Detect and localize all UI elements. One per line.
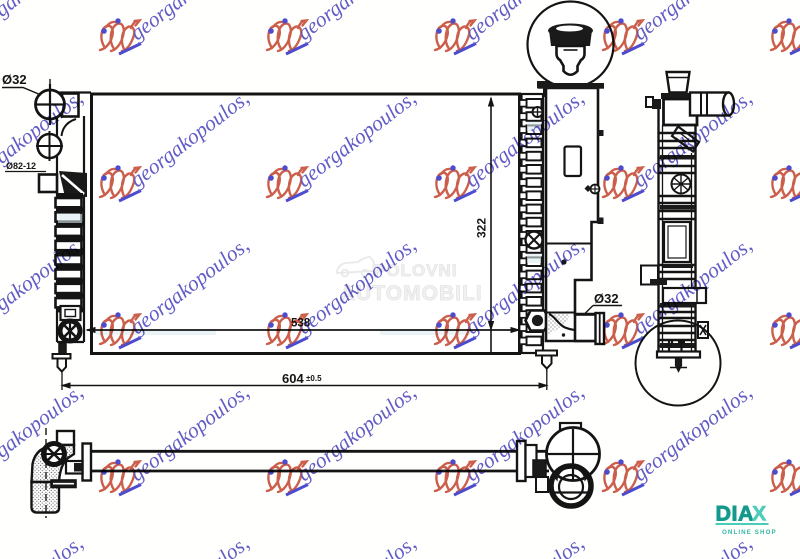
svg-text:Ø32: Ø32 xyxy=(594,291,619,306)
svg-text:Ø32: Ø32 xyxy=(2,72,27,87)
svg-text:±0.5: ±0.5 xyxy=(306,374,322,383)
svg-text:322: 322 xyxy=(475,218,489,238)
svg-text:604: 604 xyxy=(282,371,304,386)
svg-text:X: X xyxy=(752,502,767,526)
svg-text:DIA: DIA xyxy=(716,502,755,526)
svg-text:ONLINE SHOP: ONLINE SHOP xyxy=(722,529,777,536)
